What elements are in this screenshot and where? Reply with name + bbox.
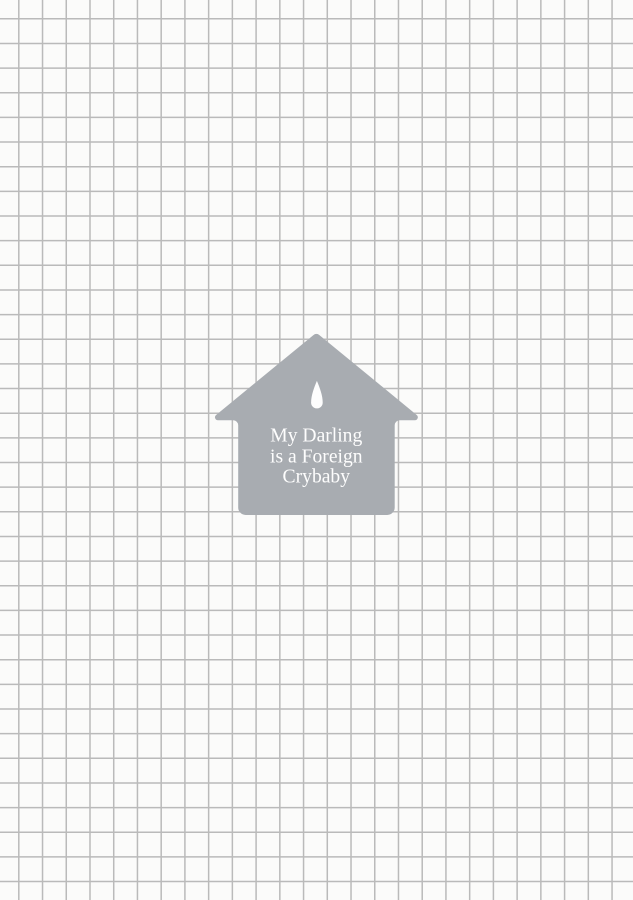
svg-text:is a Foreign: is a Foreign [270, 447, 363, 468]
svg-text:My Darling: My Darling [270, 425, 362, 446]
svg-text:Crybaby: Crybaby [283, 467, 351, 488]
